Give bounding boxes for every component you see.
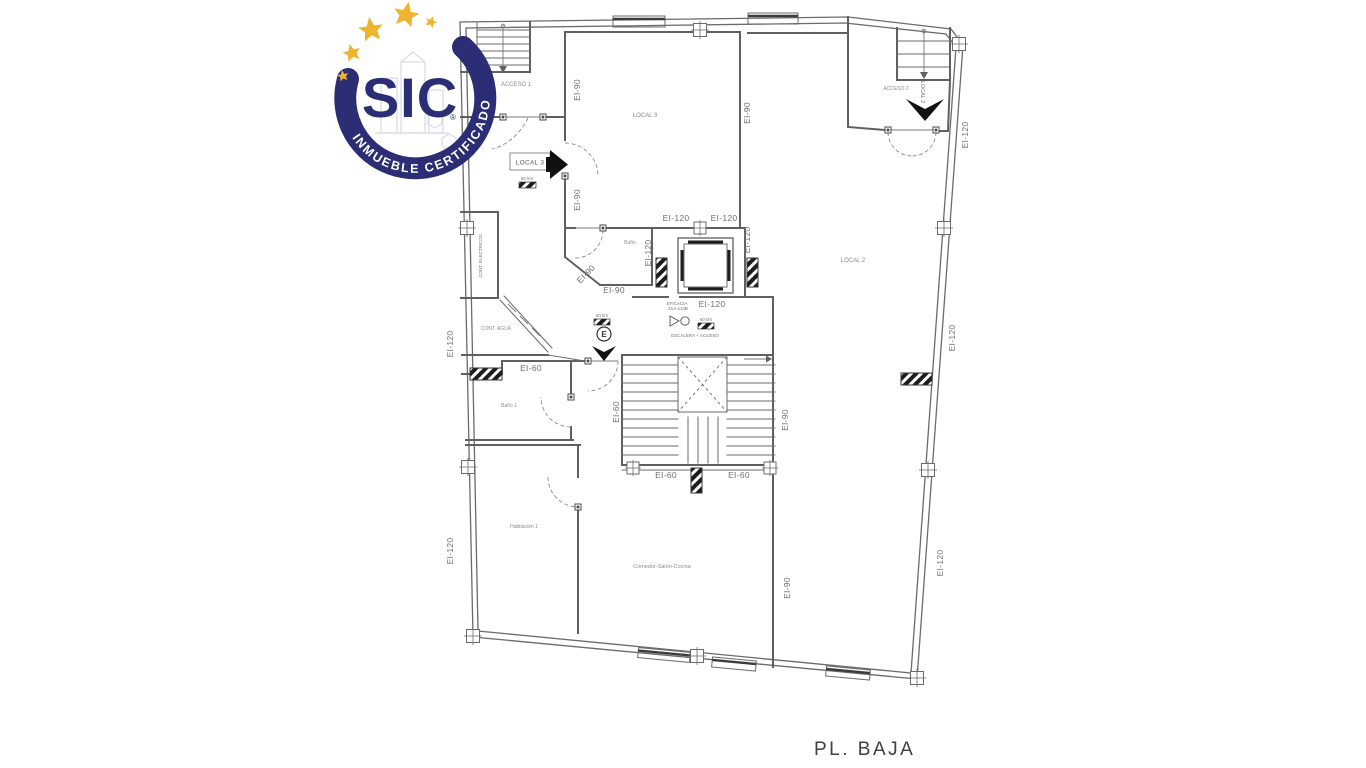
- fire-label: EI-120: [643, 240, 653, 267]
- fire-label: EI-120: [935, 550, 945, 577]
- stair-acceso2: [897, 29, 950, 79]
- fire-label: EI-120: [445, 538, 455, 565]
- fire-label: EI-60: [611, 401, 621, 423]
- local2-direction-sign: LOCAL 2: [906, 81, 944, 121]
- local3-direction-sign: LOCAL 3: [510, 150, 568, 179]
- fire-label: EI-60: [520, 363, 542, 373]
- room-label-local2: LOCAL 2: [841, 258, 866, 264]
- room-label-cont-electricos: CONT. ELECTRICOS: [478, 234, 483, 278]
- fire-label: EI-90: [575, 263, 598, 286]
- fire-label: EI-90: [572, 189, 582, 211]
- room-label-acceso2: ACCESO 2: [883, 86, 909, 92]
- star-icon: [391, 0, 421, 28]
- stair-main: [622, 356, 775, 464]
- down-arrow-icon: [592, 346, 616, 361]
- fire-label: EI-90: [742, 102, 752, 124]
- floor-plan-page: LOCAL 3 LOCAL 2 E EFICACIA 21A-113B ESCA…: [0, 0, 1366, 768]
- room-label-comedor: Comedor-Salón-Cocina: [633, 564, 691, 570]
- room-label-bano1: Baño 1: [501, 403, 517, 409]
- star-icon: [341, 41, 363, 62]
- extinguisher-symbol: [670, 316, 689, 326]
- logo-brand: SIC: [362, 66, 458, 129]
- fire-label: EI-90: [572, 79, 582, 101]
- room-label-local3: LOCAL 3: [633, 113, 658, 119]
- fire-label: EI-60: [655, 470, 677, 480]
- fire-label: EI-90: [603, 285, 625, 295]
- exit-e-symbol: E: [592, 327, 616, 361]
- flow-rate-label: 60 l/m: [700, 317, 713, 322]
- interior-walls: [461, 17, 950, 667]
- star-icon: [357, 15, 385, 42]
- fire-label: EI-120: [699, 299, 726, 309]
- flow-rate-label: 60 l/m: [521, 176, 534, 181]
- flow-rate-label: 60 l/m: [596, 313, 609, 318]
- fire-label: EI-120: [663, 213, 690, 223]
- eficacia-line2: 21A-113B: [668, 306, 688, 311]
- logo-registered-mark: ®: [450, 113, 456, 122]
- fire-label: EI-120: [960, 122, 970, 149]
- escalera-acceso-label: ESCALERA + ACCESO: [671, 333, 719, 338]
- fire-label: EI-90: [780, 409, 790, 431]
- floor-plan: LOCAL 3 LOCAL 2 E EFICACIA 21A-113B ESCA…: [445, 13, 970, 760]
- local2-direction-label: LOCAL 2: [919, 81, 925, 103]
- floor-plan-svg: LOCAL 3 LOCAL 2 E EFICACIA 21A-113B ESCA…: [0, 0, 1366, 768]
- room-label-habitacion1: Habitación 1: [510, 524, 538, 530]
- fire-label: EI-120: [947, 325, 957, 352]
- doors: [492, 114, 939, 510]
- door-hinge-markers: [500, 114, 939, 510]
- room-label-acceso1: ACCESO 1: [501, 82, 532, 88]
- local3-sign-label: LOCAL 3: [516, 160, 545, 167]
- elevator: [678, 238, 733, 293]
- outer-walls: [460, 17, 963, 679]
- fire-label: EI-90: [782, 577, 792, 599]
- fire-label: EI-120: [742, 227, 752, 254]
- fire-label: EI-120: [445, 331, 455, 358]
- star-icon: [424, 14, 439, 29]
- plan-title: PL. BAJA: [814, 739, 915, 760]
- sic-logo: INMUEBLE CERTIFICADO SIC ®: [336, 0, 493, 176]
- room-label-bano: Baño: [624, 240, 636, 246]
- fire-label: EI-120: [711, 213, 738, 223]
- exit-letter: E: [601, 330, 607, 339]
- fire-label: EI-60: [728, 470, 750, 480]
- room-label-cont-agua: CONT. AGUA: [481, 326, 512, 332]
